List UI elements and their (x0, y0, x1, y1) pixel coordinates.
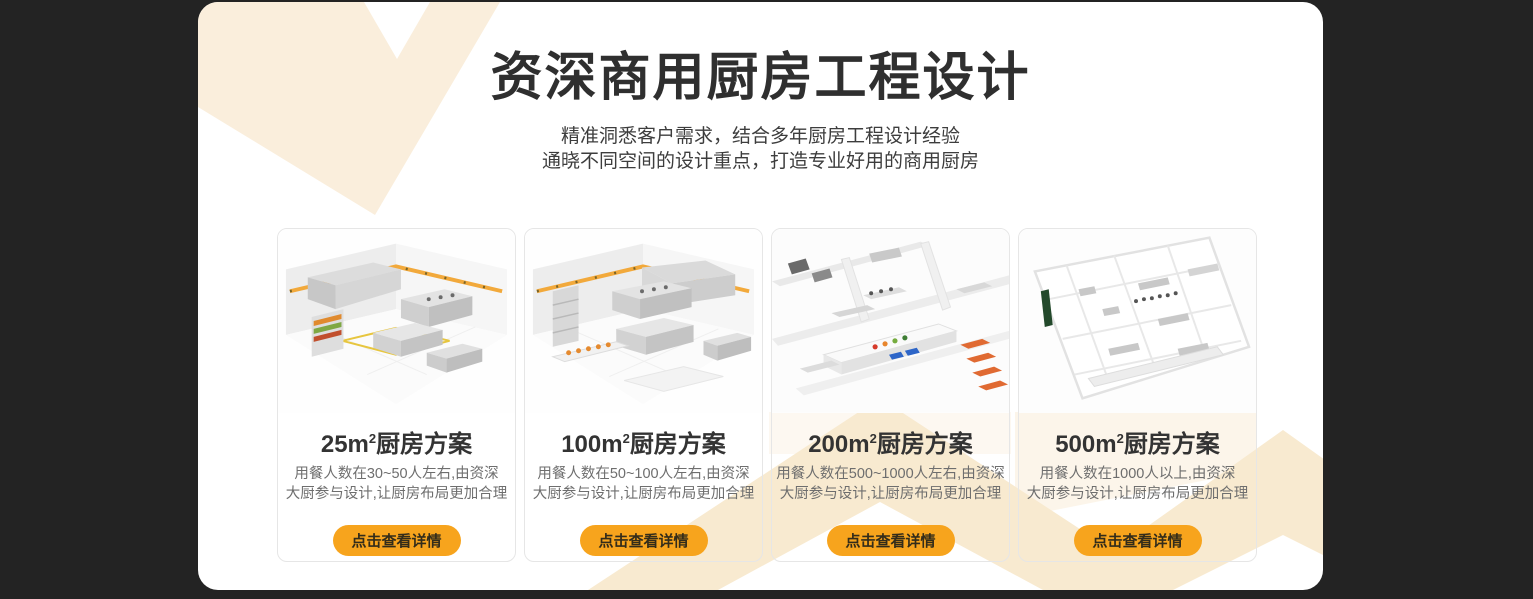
plan-title: 500m2厨房方案 (1055, 425, 1220, 459)
content-panel: 资深商用厨房工程设计 精准洞悉客户需求，结合多年厨房工程设计经验 通晓不同空间的… (198, 2, 1323, 590)
kitchen-floorplan-illustration (1019, 229, 1256, 413)
section-header: 资深商用厨房工程设计 精准洞悉客户需求，结合多年厨房工程设计经验 通晓不同空间的… (198, 2, 1323, 174)
plan-description: 用餐人数在30~50人左右,由资深 大厨参与设计,让厨房布局更加合理 (286, 465, 508, 504)
plan-description-line2: 大厨参与设计,让厨房布局更加合理 (533, 485, 755, 505)
kitchen-3d-illustration-medium (525, 229, 762, 413)
view-details-button[interactable]: 点击查看详情 (1074, 525, 1202, 556)
plan-description-line2: 大厨参与设计,让厨房布局更加合理 (776, 485, 1004, 505)
view-details-button[interactable]: 点击查看详情 (333, 525, 461, 556)
plan-description-line1: 用餐人数在50~100人左右,由资深 (533, 465, 755, 485)
plan-title: 100m2厨房方案 (561, 425, 726, 459)
plan-card-25m2: 25m2厨房方案 用餐人数在30~50人左右,由资深 大厨参与设计,让厨房布局更… (277, 228, 516, 562)
plan-title: 25m2厨房方案 (321, 425, 472, 459)
plan-description-line2: 大厨参与设计,让厨房布局更加合理 (1027, 485, 1249, 505)
plan-description-line2: 大厨参与设计,让厨房布局更加合理 (286, 485, 508, 505)
section-subtitle-line1: 精准洞悉客户需求，结合多年厨房工程设计经验 (198, 124, 1323, 149)
plan-description-line1: 用餐人数在500~1000人左右,由资深 (776, 465, 1004, 485)
section-subtitle-line2: 通晓不同空间的设计重点，打造专业好用的商用厨房 (198, 149, 1323, 174)
kitchen-render-25m2 (278, 229, 515, 413)
plan-card-500m2: 500m2厨房方案 用餐人数在1000人以上,由资深 大厨参与设计,让厨房布局更… (1018, 228, 1257, 562)
page-background: 资深商用厨房工程设计 精准洞悉客户需求，结合多年厨房工程设计经验 通晓不同空间的… (0, 0, 1533, 599)
plan-description-line1: 用餐人数在1000人以上,由资深 (1027, 465, 1249, 485)
section-title: 资深商用厨房工程设计 (198, 48, 1323, 108)
section-subtitle: 精准洞悉客户需求，结合多年厨房工程设计经验 通晓不同空间的设计重点，打造专业好用… (198, 124, 1323, 174)
view-details-button[interactable]: 点击查看详情 (580, 525, 708, 556)
kitchen-3d-illustration-large (772, 229, 1009, 413)
kitchen-render-500m2 (1019, 229, 1256, 413)
view-details-button[interactable]: 点击查看详情 (827, 525, 955, 556)
plan-cards: 25m2厨房方案 用餐人数在30~50人左右,由资深 大厨参与设计,让厨房布局更… (277, 228, 1257, 562)
plan-description: 用餐人数在500~1000人左右,由资深 大厨参与设计,让厨房布局更加合理 (776, 465, 1004, 504)
plan-card-100m2: 100m2厨房方案 用餐人数在50~100人左右,由资深 大厨参与设计,让厨房布… (524, 228, 763, 562)
plan-card-200m2: 200m2厨房方案 用餐人数在500~1000人左右,由资深 大厨参与设计,让厨… (771, 228, 1010, 562)
plan-description: 用餐人数在1000人以上,由资深 大厨参与设计,让厨房布局更加合理 (1027, 465, 1249, 504)
plan-description: 用餐人数在50~100人左右,由资深 大厨参与设计,让厨房布局更加合理 (533, 465, 755, 504)
plan-description-line1: 用餐人数在30~50人左右,由资深 (286, 465, 508, 485)
plan-title: 200m2厨房方案 (808, 425, 973, 459)
kitchen-3d-illustration-small (278, 229, 515, 413)
kitchen-render-100m2 (525, 229, 762, 413)
kitchen-render-200m2 (772, 229, 1009, 413)
